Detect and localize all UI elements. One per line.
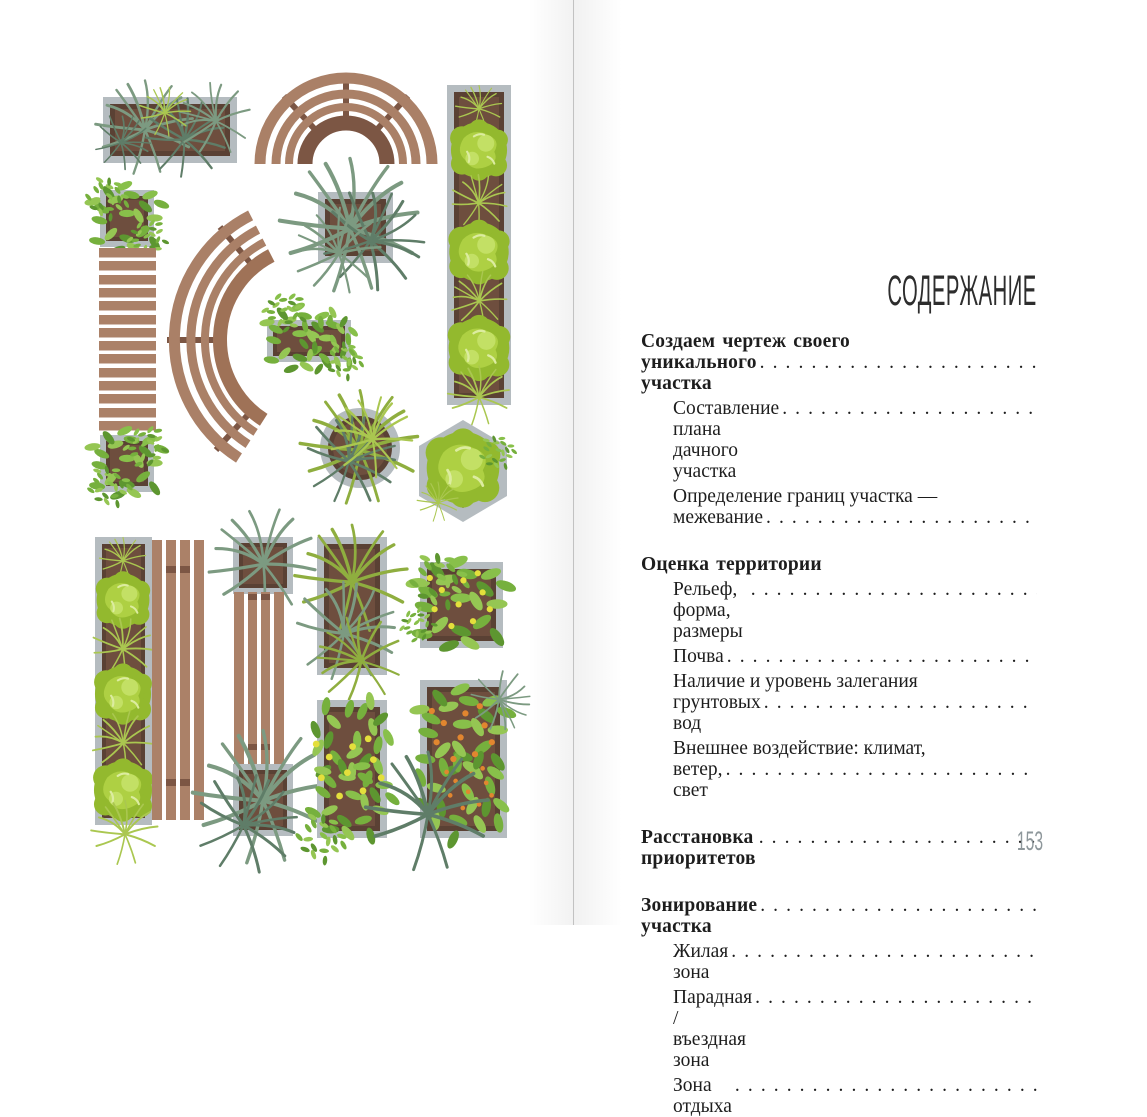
hexagonal-planter <box>417 420 521 522</box>
toc-text: Создаем чертеж своего <box>641 331 850 352</box>
dot-leader <box>726 759 1037 780</box>
toc-entry: Определение границ участка — межевание <box>641 486 1037 528</box>
leafy-planter-bottom <box>81 417 175 514</box>
toc-entry: Парадная / въездная зона <box>641 987 1037 1071</box>
toc-text: Внешнее воздействие: климат, <box>673 738 926 759</box>
toc-entry: Составление плана дачного участка <box>641 398 1037 482</box>
dot-leader <box>766 507 1037 528</box>
toc-entry: Создаем чертеж своего уникального участк… <box>641 331 1037 394</box>
dot-leader <box>751 579 1037 600</box>
dot-leader <box>760 895 1037 916</box>
toc-entry: Зона отдыха <box>641 1075 1037 1117</box>
curved-bench <box>167 215 271 458</box>
vertical-plank-bench <box>152 540 204 820</box>
toc-entry: Оценка территории <box>641 554 1037 575</box>
sage-grass-square-planter <box>278 159 440 310</box>
toc-entry: Внешнее воздействие: климат, ветер, свет <box>641 738 1037 801</box>
toc-text: Почва <box>673 646 724 667</box>
book-spread: СОДЕРЖАНИЕ Создаем чертеж своего уникаль… <box>0 0 1147 925</box>
toc-text: Рельеф, форма, размеры <box>673 579 748 642</box>
planter-grass-box <box>85 69 265 189</box>
wooden-plank-path <box>99 248 156 431</box>
dot-leader <box>731 941 1037 962</box>
toc-entry: Почва <box>641 646 1037 667</box>
grass-rect-planter <box>275 525 419 720</box>
arched-bench <box>260 74 432 164</box>
table-of-contents: Создаем чертеж своего уникального участк… <box>641 331 1037 1117</box>
toc-entry: Зонирование участка <box>641 895 1037 937</box>
toc-text: Зона отдыха <box>673 1075 732 1117</box>
page-number: 153 <box>998 828 1043 855</box>
dot-leader <box>782 398 1037 419</box>
toc-text: Составление плана дачного участка <box>673 398 779 482</box>
toc-entry: Расстановка приоритетов <box>641 827 1037 869</box>
tall-planter-right <box>441 85 515 425</box>
dot-leader <box>755 987 1037 1008</box>
left-page <box>0 0 573 925</box>
toc-text: Парадная / въездная зона <box>673 987 752 1071</box>
dot-leader <box>727 646 1037 667</box>
toc-text: Оценка территории <box>641 554 822 575</box>
page-title: СОДЕРЖАНИЕ <box>719 270 1037 319</box>
round-planter <box>286 387 422 522</box>
dot-leader <box>764 692 1037 713</box>
toc-text: уникального участка <box>641 352 757 394</box>
toc-text: Расстановка приоритетов <box>641 827 756 869</box>
dot-leader <box>735 1075 1037 1096</box>
small-leafy-planter <box>257 285 372 387</box>
page-title-text: СОДЕРЖАНИЕ <box>888 270 1037 313</box>
flower-rect-planter <box>287 691 411 872</box>
dot-leader <box>759 827 1037 848</box>
toc-text: Наличие и уровень залегания <box>673 671 918 692</box>
toc-entry: Наличие и уровень залегания грунтовых во… <box>641 671 1037 734</box>
bush-planter-column <box>83 537 161 864</box>
toc-text: Жилая зона <box>673 941 728 983</box>
dot-leader <box>760 352 1037 373</box>
garden-illustration <box>0 0 573 925</box>
flower-square-planter <box>393 542 518 655</box>
page-number-text: 153 <box>1017 828 1043 855</box>
toc-text: межевание <box>673 507 763 528</box>
toc-text: Зонирование участка <box>641 895 757 937</box>
toc-entry: Рельеф, форма, размеры <box>641 579 1037 642</box>
toc-text: грунтовых вод <box>673 692 761 734</box>
berry-rect-planter <box>366 659 542 870</box>
toc-entry: Жилая зона <box>641 941 1037 983</box>
toc-text: ветер, свет <box>673 759 723 801</box>
right-page: СОДЕРЖАНИЕ Создаем чертеж своего уникаль… <box>574 0 1147 925</box>
toc-text: Определение границ участка — <box>673 486 937 507</box>
